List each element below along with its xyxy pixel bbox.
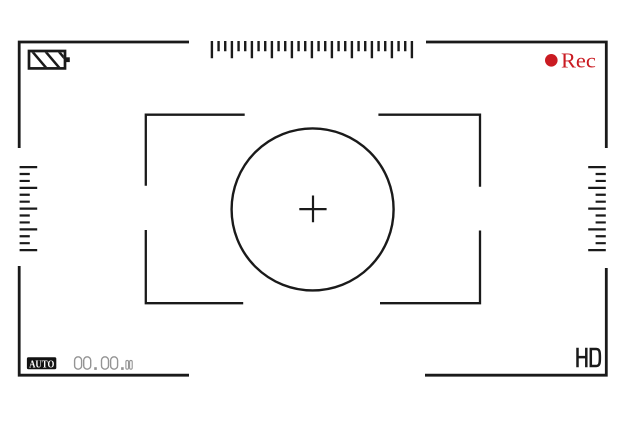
svg-text:AUTO: AUTO <box>29 358 55 370</box>
svg-text:Rec: Rec <box>561 49 596 73</box>
